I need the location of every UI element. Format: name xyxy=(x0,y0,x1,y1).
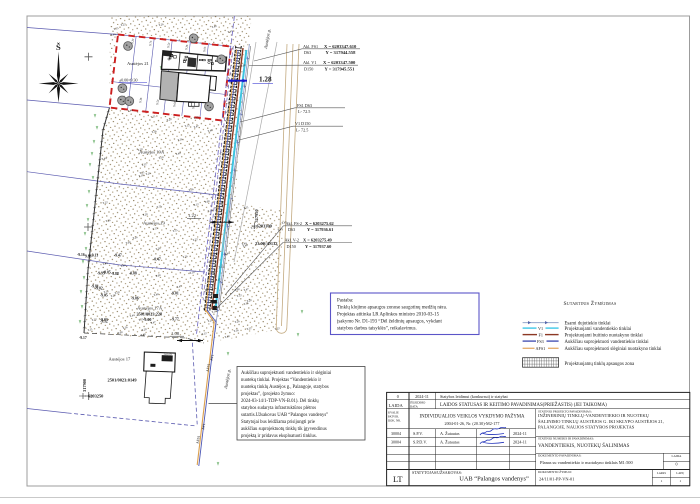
svg-text:L- 72.5: L- 72.5 xyxy=(296,127,308,132)
svg-text:Akl. FS-2: Akl. FS-2 xyxy=(286,221,303,226)
svg-text:Austėjos 19A: Austėjos 19A xyxy=(139,150,165,155)
svg-text:2501/0023:0149: 2501/0023:0149 xyxy=(108,378,138,383)
svg-text:-9.05: -9.05 xyxy=(100,294,108,298)
svg-text:Austėjos 19: Austėjos 19 xyxy=(143,221,166,226)
svg-text:DOKUMENTO ŽYMUO:: DOKUMENTO ŽYMUO: xyxy=(538,469,572,474)
svg-text:6203300: 6203300 xyxy=(257,224,273,229)
svg-text:Projektuojami vandentiekio tin: Projektuojami vandentiekio tinklai xyxy=(565,327,632,332)
svg-text:Planas su vandentiekio ir nuot: Planas su vandentiekio ir nuotakyno tink… xyxy=(540,460,633,465)
svg-text:Š: Š xyxy=(56,42,61,52)
svg-text:2024-11: 2024-11 xyxy=(513,440,527,445)
svg-text:LAPŲ: LAPŲ xyxy=(676,471,685,475)
svg-text:DOKUMENTO PAVADINIMAS:: DOKUMENTO PAVADINIMAS: xyxy=(538,454,581,458)
svg-text:1: 1 xyxy=(679,479,681,483)
svg-text:STATYTOJAS/UŽSAKOVAS:: STATYTOJAS/UŽSAKOVAS: xyxy=(412,470,462,475)
svg-text:6203250: 6203250 xyxy=(88,394,104,399)
svg-text:Tinklų klojimo apsaugos zonose: Tinklų klojimo apsaugos zonose saugotinų… xyxy=(337,306,447,311)
svg-text:1: 1 xyxy=(661,479,663,483)
svg-text:Y = 317937.60: Y = 317937.60 xyxy=(305,244,332,249)
svg-text:X = 6203347.610: X = 6203347.610 xyxy=(324,44,357,49)
svg-text:aukščiau suprojektuotų tinklų: aukščiau suprojektuotų tinklų tik įgyven… xyxy=(241,427,327,432)
svg-text:nuotekų tinklų Austėjos g., Pa: nuotekų tinklų Austėjos g., Palangoje, s… xyxy=(241,385,329,390)
svg-text:-9.01: -9.01 xyxy=(171,292,179,296)
svg-text:sutartis.Užsakovas UAB “Palang: sutartis.Užsakovas UAB “Palangos vandeny… xyxy=(241,412,328,418)
svg-text:nuotekų tinklai. Projektas “V: nuotekų tinklai. Projektas “Vandentiekio… xyxy=(241,377,321,383)
svg-text:±0.00=9.30: ±0.00=9.30 xyxy=(119,78,137,83)
svg-text:Y = 317944.558: Y = 317944.558 xyxy=(326,50,357,55)
svg-text:V1: V1 xyxy=(538,326,543,331)
svg-text:įsakymo Nr. D1-193 “Dėl že: įsakymo Nr. D1-193 “Dėl želdinių apsaugo… xyxy=(337,319,442,325)
svg-text:X = 6203275.49: X = 6203275.49 xyxy=(303,238,333,243)
svg-text:Projektuojamų tinklų apsaugos: Projektuojamų tinklų apsaugos zona xyxy=(565,362,636,367)
svg-text:0: 0 xyxy=(676,462,678,467)
svg-text:L- 72.5: L- 72.5 xyxy=(298,109,310,114)
svg-text:D150: D150 xyxy=(304,66,313,71)
svg-text:-9.77: -9.77 xyxy=(171,318,179,322)
svg-text:24/11/01-PP-VN-01: 24/11/01-PP-VN-01 xyxy=(539,476,574,481)
svg-text:-9.13: -9.13 xyxy=(91,254,99,258)
svg-text:VANDENTIEKIS, NUOTEKŲ ŠALINIMA: VANDENTIEKIS, NUOTEKŲ ŠALINIMAS xyxy=(538,443,630,449)
svg-text:X = 6203347.500: X = 6203347.500 xyxy=(323,60,356,65)
svg-text:2024-11: 2024-11 xyxy=(513,431,527,436)
svg-text:DOK. NR.: DOK. NR. xyxy=(388,419,401,423)
svg-text:-9.81: -9.81 xyxy=(91,285,99,289)
svg-text:2501/0023:228: 2501/0023:228 xyxy=(137,312,163,317)
svg-text:Aukščiau suprojektuoti vandent: Aukščiau suprojektuoti vandentiekio ir s… xyxy=(241,371,332,376)
svg-text:Statybos leidimui (konkursui): Statybos leidimui (konkursui) ir statyba… xyxy=(440,394,509,399)
svg-text:LAIDOS STATUSAS IR KEITIMO PAV: LAIDOS STATUSAS IR KEITIMO PAVADINIMAS(P… xyxy=(440,402,607,408)
svg-text:FS1 D63: FS1 D63 xyxy=(297,103,312,108)
svg-text:D150: D150 xyxy=(287,244,296,249)
svg-text:LT: LT xyxy=(393,474,403,484)
svg-text:projektą ir pridavus eksploatu: projektą ir pridavus eksploatuoti tinklu… xyxy=(241,434,317,439)
svg-text:Projektas atitinka LR Ap: Projektas atitinka LR Aplinkos ministro … xyxy=(337,313,440,318)
svg-text:9.86: 9.86 xyxy=(85,255,92,259)
svg-text:1.08: 1.08 xyxy=(171,331,180,336)
svg-text:A. Žutautas: A. Žutautas xyxy=(440,431,460,436)
svg-text:-9.88: -9.88 xyxy=(111,272,119,276)
svg-text:V1 D150: V1 D150 xyxy=(295,121,310,126)
svg-text:-9.06: -9.06 xyxy=(131,297,139,301)
svg-text:Esami dujotiekio tinklai: Esami dujotiekio tinklai xyxy=(565,321,612,326)
svg-text:Akl. V-2: Akl. V-2 xyxy=(285,238,299,243)
svg-text:LAPAS: LAPAS xyxy=(657,471,667,475)
svg-text:Statytojai bus leidžiama prisi: Statytojai bus leidžiama prisijungti pri… xyxy=(241,420,315,425)
svg-text:D63: D63 xyxy=(288,227,295,232)
svg-text:Austėjos 21: Austėjos 21 xyxy=(127,61,150,66)
svg-text:1.28: 1.28 xyxy=(259,76,272,84)
svg-text:S.P.D.V.: S.P.D.V. xyxy=(413,440,427,445)
svg-text:LAIDA: LAIDA xyxy=(389,403,404,408)
svg-text:S.P.V.: S.P.V. xyxy=(413,431,423,436)
svg-text:-0.05: -0.05 xyxy=(103,271,111,275)
svg-text:AFS1: AFS1 xyxy=(536,346,546,351)
svg-text:Pastaba:: Pastaba: xyxy=(337,299,353,304)
svg-text:Ø132: Ø132 xyxy=(268,241,278,246)
svg-text:Austėjos 17A: Austėjos 17A xyxy=(137,306,163,311)
svg-text:317900: 317900 xyxy=(82,378,87,392)
svg-text:Gal.4.9: Gal.4.9 xyxy=(164,353,172,356)
svg-text:UAB “Palangos vandenys”: UAB “Palangos vandenys” xyxy=(459,476,529,483)
svg-text:317950: 317950 xyxy=(254,209,259,223)
svg-text:Austėjos 17: Austėjos 17 xyxy=(109,357,132,362)
svg-text:Projektuojami buitinio nuotaky: Projektuojami buitinio nuotakyno tinklai xyxy=(565,333,644,338)
svg-text:D63: D63 xyxy=(304,50,311,55)
svg-text:statybos darbus taisyklės”, re: statybos darbus taisyklės”, reikalavimus… xyxy=(337,327,417,332)
svg-text:Sutartinis Žymėjimas: Sutartinis Žymėjimas xyxy=(564,299,617,307)
svg-text:Akl. FS1: Akl. FS1 xyxy=(303,44,318,49)
svg-text:30004: 30004 xyxy=(391,431,401,436)
svg-text:-9.16: -9.16 xyxy=(77,253,85,257)
svg-text:-9.03: -9.03 xyxy=(100,318,108,322)
svg-text:Y = 317945.551: Y = 317945.551 xyxy=(325,66,356,71)
svg-text:0: 0 xyxy=(397,394,399,399)
svg-text:F1: F1 xyxy=(539,332,543,337)
svg-text:-9.17: -9.17 xyxy=(79,336,87,340)
svg-text:-0.88: -0.88 xyxy=(129,272,137,276)
svg-text:30004: 30004 xyxy=(391,440,401,445)
svg-text:-9.47: -9.47 xyxy=(114,254,122,258)
svg-text:FS3: FS3 xyxy=(537,339,544,344)
svg-text:2024-03-14/1-TDP-VN-B.01). Dėl: 2024-03-14/1-TDP-VN-B.01). Dėl tinklų xyxy=(241,399,319,404)
svg-text:-0.47: -0.47 xyxy=(153,258,161,262)
svg-text:A. Žutautas: A. Žutautas xyxy=(440,440,460,445)
svg-text:LAIDA: LAIDA xyxy=(672,454,683,458)
svg-text:STATINIO NUMERIS IR PAVADINIMA: STATINIO NUMERIS IR PAVADINIMAS: xyxy=(538,437,594,441)
svg-text:1.22: 1.22 xyxy=(188,213,197,218)
svg-text:DATA: DATA xyxy=(410,405,419,409)
svg-text:Aukščiau suprojektuoti slėgini: Aukščiau suprojektuoti slėginiai nuotaky… xyxy=(565,347,663,352)
svg-text:X = 6203275.62: X = 6203275.62 xyxy=(305,221,334,226)
svg-text:2024-11: 2024-11 xyxy=(415,394,429,399)
svg-text:statybos sudaryta infrastruktū: statybos sudaryta infrastruktūros plėtro… xyxy=(241,406,316,411)
svg-text:Aukščiau suprojektuoti vandent: Aukščiau suprojektuoti vandentiekio tink… xyxy=(565,340,650,345)
svg-text:Akl. V1: Akl. V1 xyxy=(303,60,316,65)
svg-text:INŽINERINIŲ TINKLŲ-VANDENTIEKI: INŽINERINIŲ TINKLŲ-VANDENTIEKIO IR NUOTE… xyxy=(538,413,650,418)
svg-text:projektas”, (projekto žymuo:: projektas”, (projekto žymuo: xyxy=(241,392,295,397)
svg-text:Y = 317936.61: Y = 317936.61 xyxy=(307,227,333,232)
svg-text:INDIVIDUALIOS VEIKLOS VYKDYMO: INDIVIDUALIOS VEIKLOS VYKDYMO PAŽYMA xyxy=(419,414,525,420)
